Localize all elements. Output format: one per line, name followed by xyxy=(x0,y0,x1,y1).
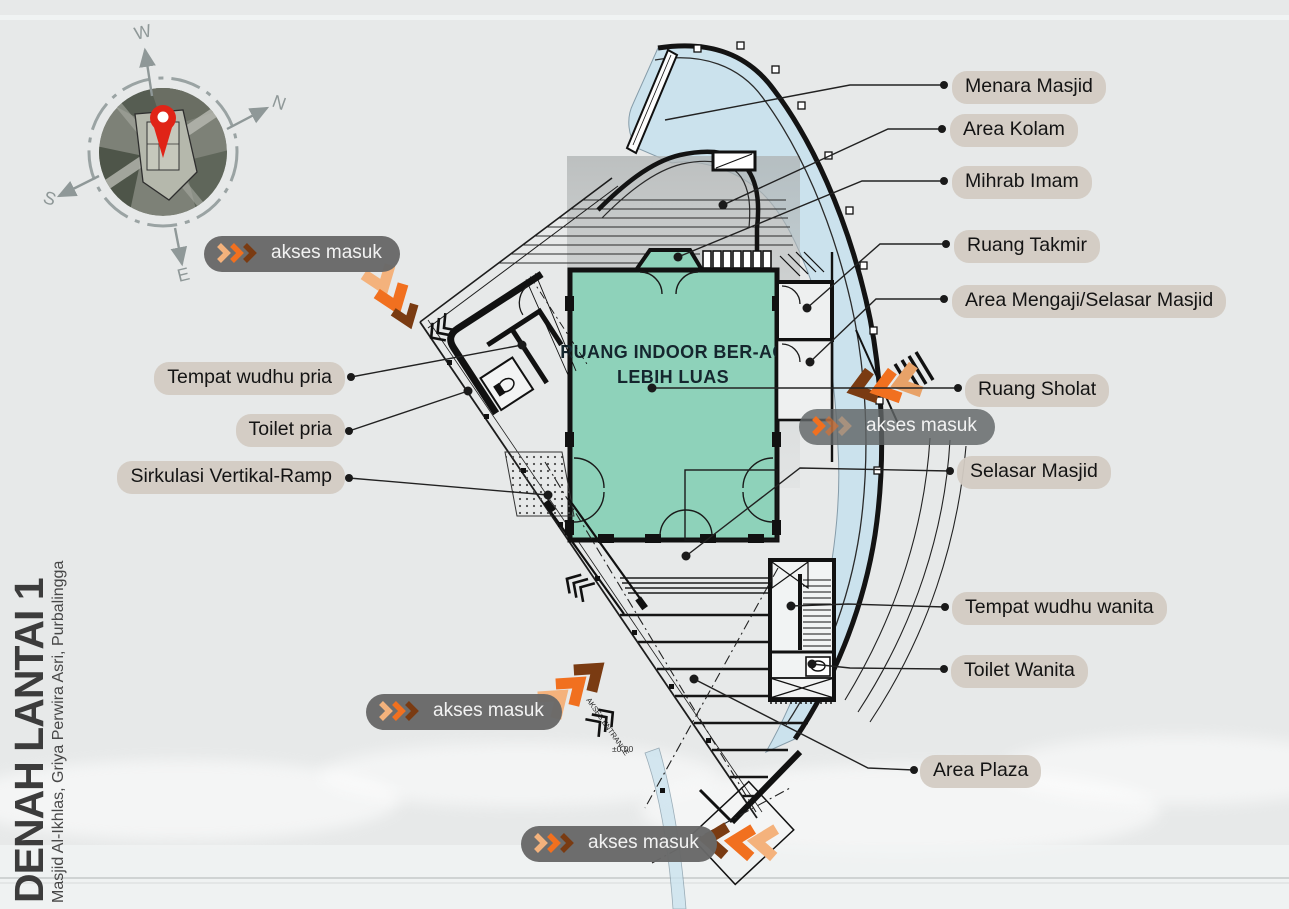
akses-masuk-label: akses masuk xyxy=(588,832,699,854)
label-selasar-masjid: Selasar Masjid xyxy=(957,456,1111,489)
floor-plan-drawing: RUANG INDOOR BER-AC LEBIH LUAS xyxy=(0,0,1289,909)
prayer-room: RUANG INDOOR BER-AC LEBIH LUAS xyxy=(560,250,786,543)
akses-masuk-badge-south: akses masuk xyxy=(521,826,717,862)
triple-chevron-icon xyxy=(811,416,857,436)
label-area-mengaji: Area Mengaji/Selasar Masjid xyxy=(952,285,1226,318)
label-area-kolam: Area Kolam xyxy=(950,114,1078,147)
label-toilet-wanita: Toilet Wanita xyxy=(951,655,1088,688)
akses-masuk-badge-east: akses masuk xyxy=(799,409,995,445)
label-ruang-sholat: Ruang Sholat xyxy=(965,374,1109,407)
room-label-line1: RUANG INDOOR BER-AC xyxy=(560,342,786,362)
womens-block xyxy=(770,560,834,703)
shoe-rack xyxy=(703,251,771,268)
label-ruang-takmir: Ruang Takmir xyxy=(954,230,1100,263)
room-label-line2: LEBIH LUAS xyxy=(617,367,729,387)
title-block: DENAH LANTAI 1 Masjid Al-Ikhlas, Griya P… xyxy=(10,555,68,903)
label-mihrab-imam: Mihrab Imam xyxy=(952,166,1092,199)
akses-masuk-label: akses masuk xyxy=(271,242,382,264)
label-menara-masjid: Menara Masjid xyxy=(952,71,1106,104)
akses-masuk-badge-northwest: akses masuk xyxy=(204,236,400,272)
label-area-plaza: Area Plaza xyxy=(920,755,1041,788)
top-divider xyxy=(0,15,1289,20)
akses-masuk-label: akses masuk xyxy=(866,415,977,437)
triple-chevron-icon xyxy=(378,701,424,721)
page-title: DENAH LANTAI 1 xyxy=(10,555,49,903)
triple-chevron-icon xyxy=(216,243,262,263)
slide: RUANG INDOOR BER-AC LEBIH LUAS xyxy=(0,0,1289,909)
label-wudhu-pria: Tempat wudhu pria xyxy=(154,362,345,395)
akses-masuk-label: akses masuk xyxy=(433,700,544,722)
page-subtitle: Masjid Al-Ikhlas, Griya Perwira Asri, Pu… xyxy=(50,555,68,903)
akses-masuk-badge-southwest: akses masuk xyxy=(366,694,562,730)
label-toilet-pria: Toilet pria xyxy=(236,414,345,447)
label-wudhu-wanita: Tempat wudhu wanita xyxy=(952,592,1167,625)
label-sirkulasi-ramp: Sirkulasi Vertikal-Ramp xyxy=(117,461,345,494)
triple-chevron-icon xyxy=(533,833,579,853)
